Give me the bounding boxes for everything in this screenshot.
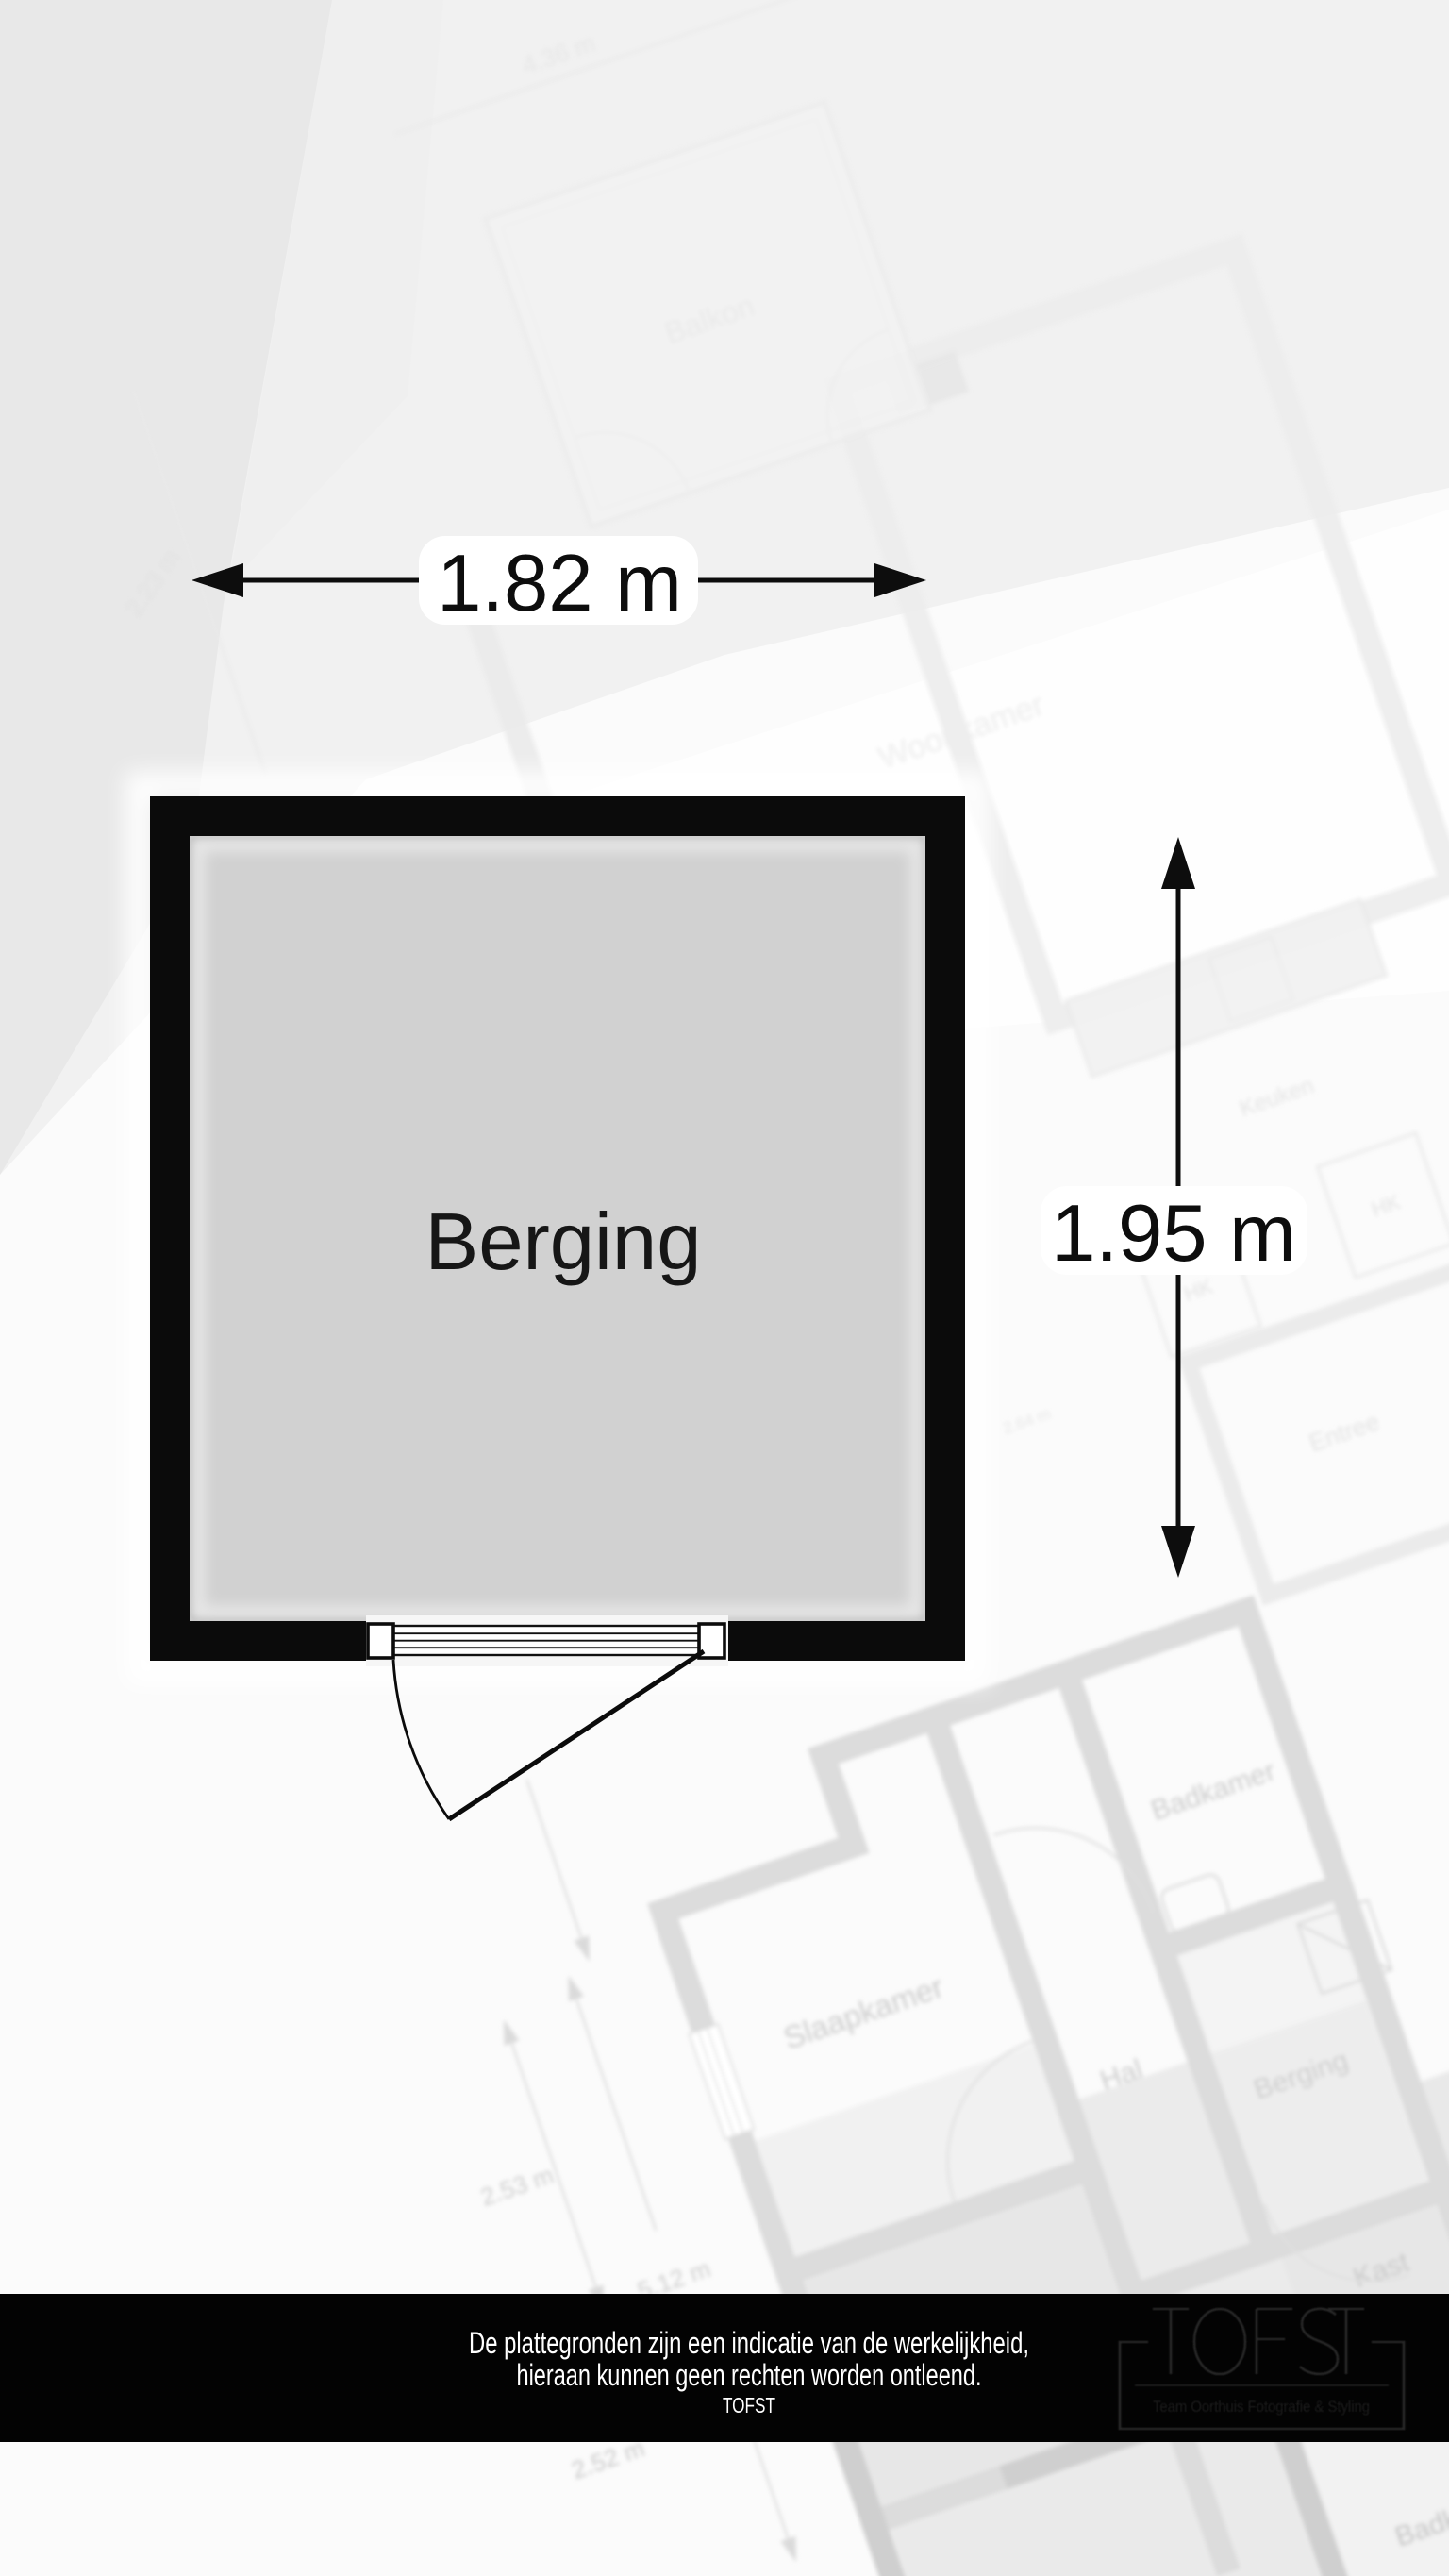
svg-text:Team Oorthuis Fotografie & Sty: Team Oorthuis Fotografie & Styling <box>1153 2399 1370 2416</box>
svg-text:Berging: Berging <box>425 1197 702 1287</box>
svg-text:1.95 m: 1.95 m <box>1051 1189 1296 1279</box>
svg-text:TOFST: TOFST <box>723 2393 775 2417</box>
svg-text:hieraan kunnen geen rechten wo: hieraan kunnen geen rechten worden ontle… <box>517 2358 982 2392</box>
svg-text:De plattegronden zijn een indi: De plattegronden zijn een indicatie van … <box>469 2326 1029 2360</box>
svg-text:1.82 m: 1.82 m <box>437 539 682 628</box>
